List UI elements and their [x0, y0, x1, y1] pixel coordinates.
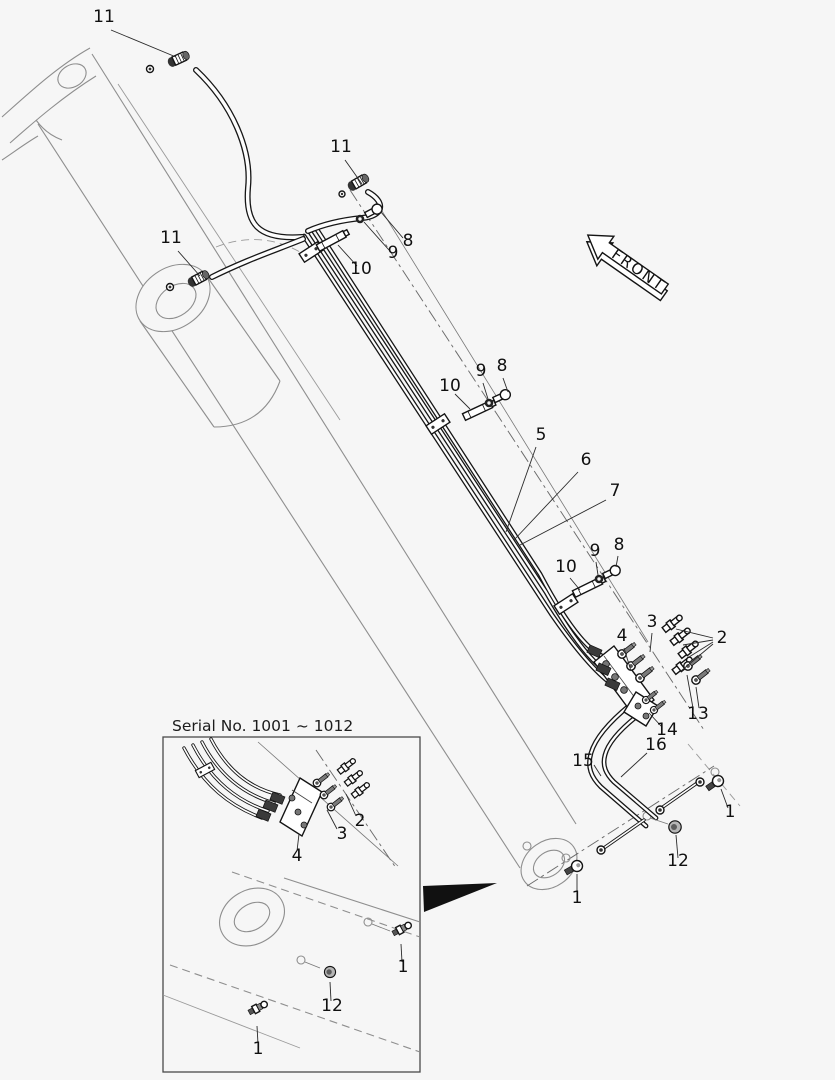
plug-icon — [324, 966, 335, 977]
leader-line — [596, 562, 598, 575]
leader-line — [506, 447, 536, 532]
callout-main-15: 15 — [572, 751, 594, 771]
callout-main-5: 5 — [536, 425, 547, 445]
callout-main-1: 1 — [725, 802, 736, 822]
inset-pointer-wedge — [423, 883, 497, 912]
callout-main-7: 7 — [610, 481, 621, 501]
callout-main-9: 9 — [388, 243, 399, 263]
callout-main-11: 11 — [160, 228, 182, 248]
callout-inset-4: 4 — [292, 846, 303, 866]
callout-main-16: 16 — [645, 735, 667, 755]
callout-main-10: 10 — [350, 259, 372, 279]
leader-line — [650, 633, 652, 652]
adapter-icon — [337, 757, 357, 775]
nipple-set-b — [462, 388, 511, 420]
grease-fitting-icon — [247, 999, 269, 1016]
callout-main-3: 3 — [647, 612, 658, 632]
callout-inset-1: 1 — [398, 957, 409, 977]
callout-main-9: 9 — [476, 361, 487, 381]
elbow-fitting-icon — [704, 773, 725, 793]
callout-inset-2: 2 — [355, 811, 366, 831]
pipe-clamp-icon — [554, 594, 578, 614]
inset-border — [163, 737, 420, 1072]
callout-main-11: 11 — [93, 7, 115, 27]
bolt-icon — [690, 666, 712, 685]
bolt-icon — [326, 795, 345, 813]
callout-main-8: 8 — [614, 535, 625, 555]
callout-main-12: 12 — [667, 851, 689, 871]
plug-icon — [669, 821, 681, 833]
callout-inset-3: 3 — [337, 824, 348, 844]
leader-line — [520, 500, 606, 545]
callout-main-1: 1 — [572, 888, 583, 908]
callout-main-6: 6 — [581, 450, 592, 470]
leader-line — [111, 30, 176, 57]
bolt-icon — [634, 664, 656, 683]
leader-line — [594, 765, 601, 776]
callout-inset-1: 1 — [253, 1039, 264, 1059]
callout-labels: 1111118910109856710984321314161511212341… — [93, 7, 735, 1059]
callout-main-4: 4 — [617, 626, 628, 646]
callout-inset-12: 12 — [321, 996, 343, 1016]
leader-line — [381, 212, 403, 238]
callout-main-10: 10 — [555, 557, 577, 577]
bolt-icon — [319, 783, 338, 801]
boom-structure — [2, 48, 740, 900]
leader-line — [364, 222, 389, 250]
leader-line — [621, 753, 647, 777]
callout-main-11: 11 — [330, 137, 352, 157]
inset-detail: Serial No. 1001 ~ 1012 — [163, 717, 420, 1072]
banjo-fitting-icon — [166, 50, 191, 69]
callout-main-9: 9 — [590, 541, 601, 561]
leader-line — [570, 578, 580, 590]
front-arrow: FRONT — [576, 224, 675, 307]
leader-line — [455, 394, 470, 409]
bolt-icon — [312, 771, 331, 789]
callout-main-2: 2 — [717, 628, 728, 648]
callout-main-10: 10 — [439, 376, 461, 396]
callout-main-8: 8 — [497, 356, 508, 376]
parts-diagram-canvas: FRONT Serial No. 1001 ~ 1012 — [0, 0, 835, 1080]
callout-main-8: 8 — [403, 231, 414, 251]
callout-main-13: 13 — [687, 704, 709, 724]
leader-line — [327, 810, 337, 829]
inset-title: Serial No. 1001 ~ 1012 — [172, 717, 353, 735]
